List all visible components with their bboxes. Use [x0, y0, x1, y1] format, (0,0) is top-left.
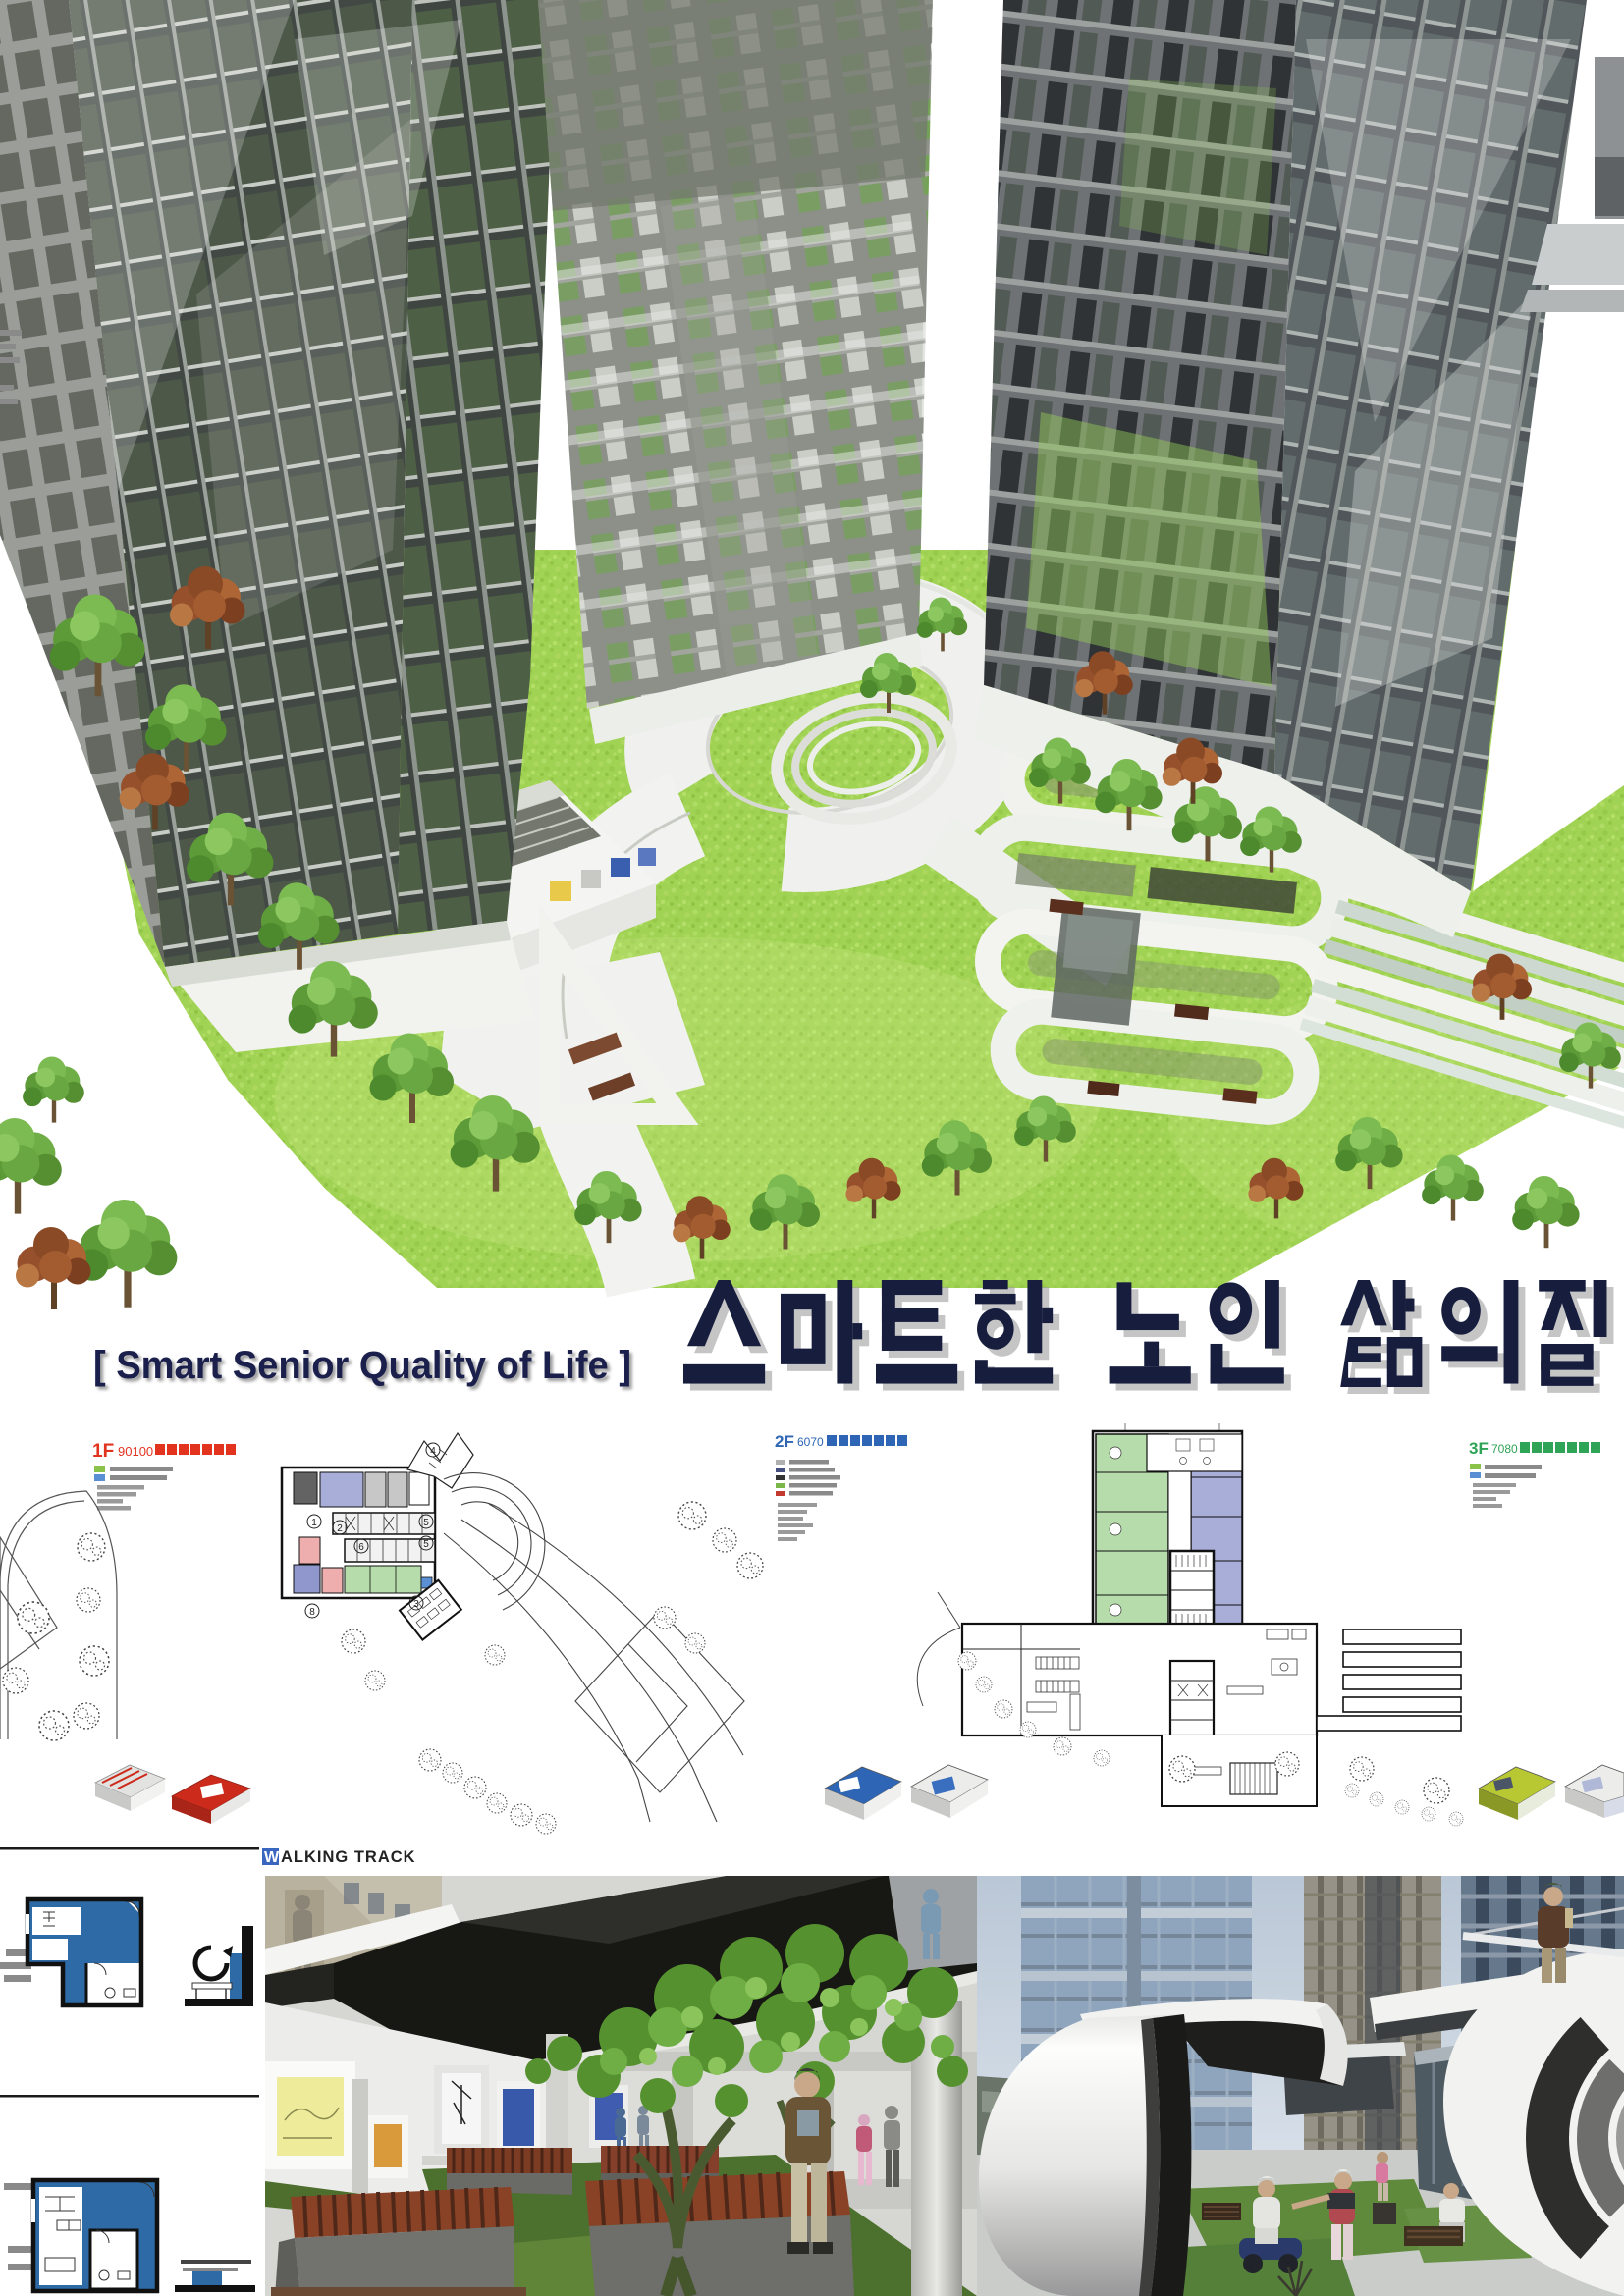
- svg-text:2F: 2F: [775, 1432, 794, 1451]
- svg-text:7080: 7080: [1491, 1442, 1518, 1456]
- svg-text:[ Smart Senior Quality of Life: [ Smart Senior Quality of Life ]: [93, 1344, 631, 1387]
- svg-text:5: 5: [423, 1539, 429, 1550]
- svg-text:ALKING TRACK: ALKING TRACK: [281, 1848, 416, 1866]
- svg-text:3F: 3F: [1469, 1439, 1489, 1458]
- svg-text:1F: 1F: [92, 1441, 114, 1462]
- svg-text:4: 4: [430, 1446, 436, 1457]
- svg-text:8: 8: [309, 1607, 315, 1618]
- svg-text:90100: 90100: [118, 1444, 153, 1459]
- svg-text:3: 3: [413, 1599, 419, 1610]
- svg-text:5: 5: [423, 1518, 429, 1528]
- svg-text:W: W: [264, 1849, 280, 1866]
- svg-text:6070: 6070: [797, 1435, 824, 1449]
- svg-text:2: 2: [337, 1523, 343, 1534]
- svg-text:6: 6: [358, 1542, 364, 1553]
- svg-text:1: 1: [311, 1518, 317, 1528]
